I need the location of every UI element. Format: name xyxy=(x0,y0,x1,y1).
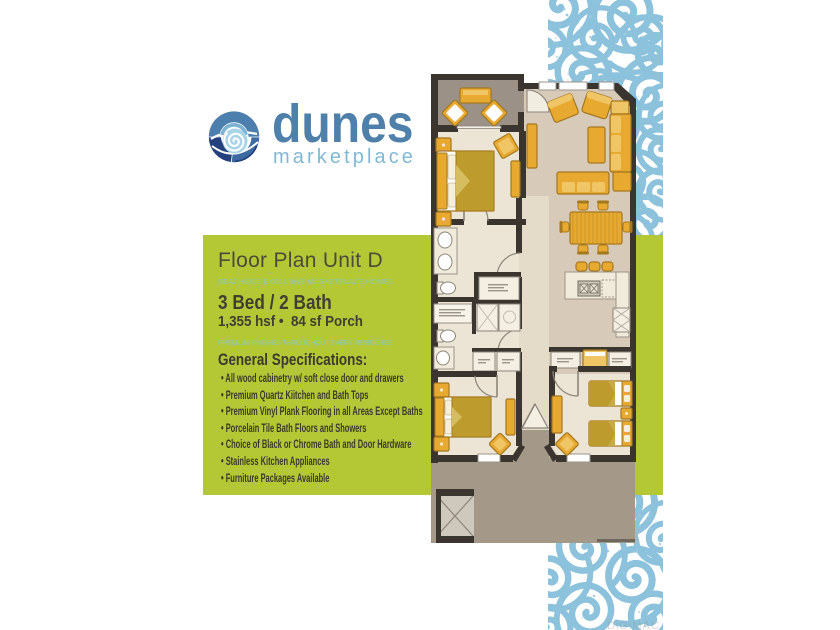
svg-text:DiGiMAC: DiGiMAC xyxy=(607,620,660,630)
